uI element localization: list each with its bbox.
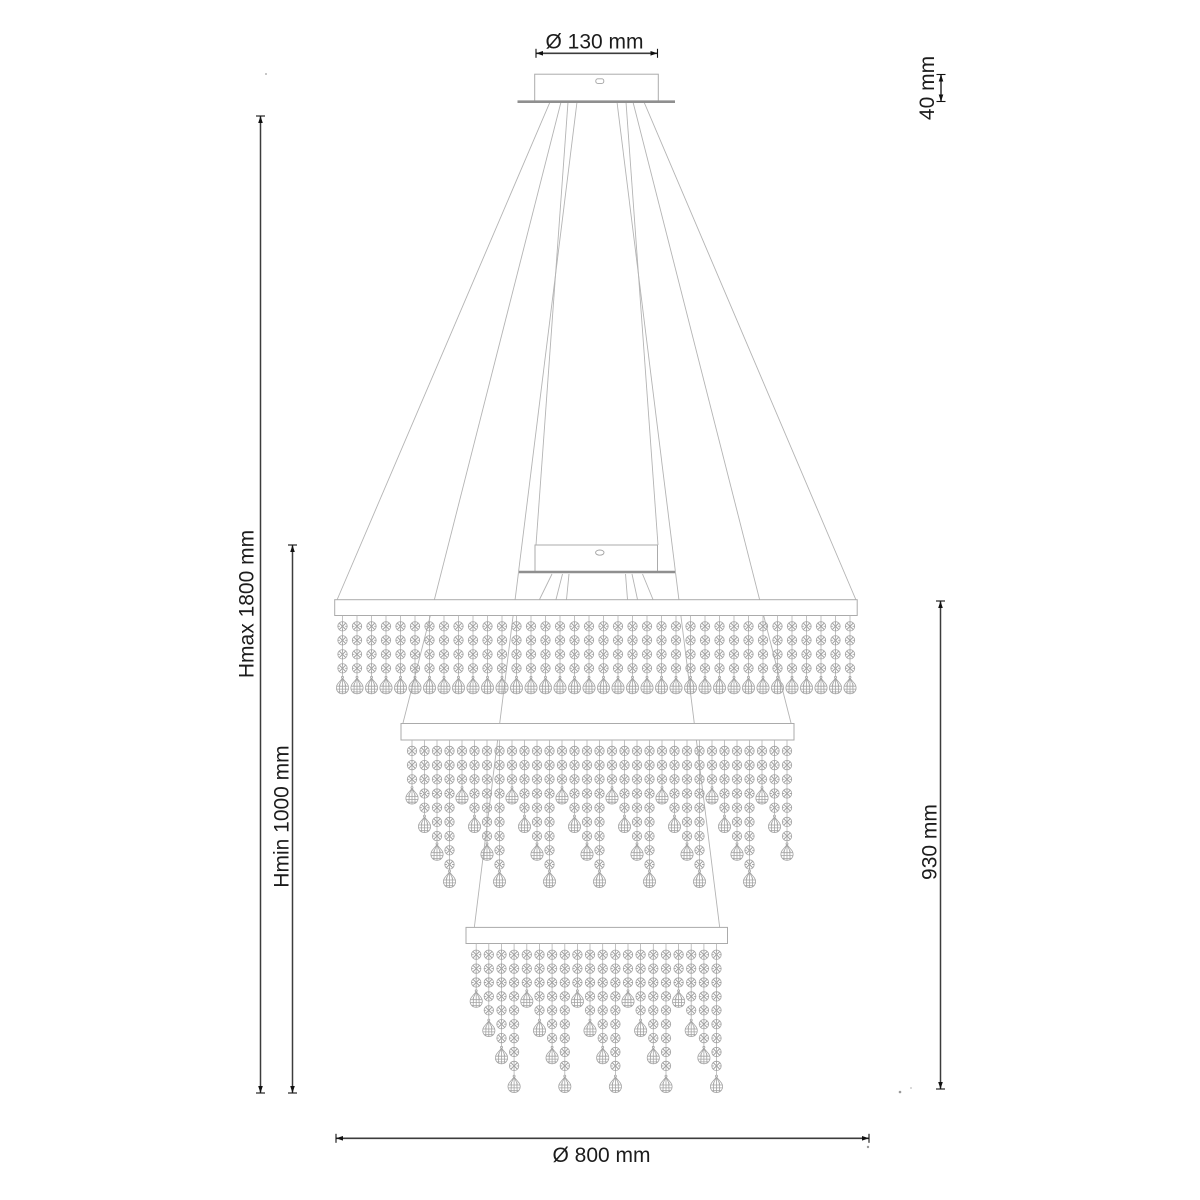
svg-text:Ø 130 mm: Ø 130 mm: [545, 30, 643, 53]
svg-text:Hmax 1800 mm: Hmax 1800 mm: [236, 530, 259, 678]
svg-text:930 mm: 930 mm: [919, 804, 942, 880]
svg-text:Hmin 1000 mm: Hmin 1000 mm: [271, 745, 294, 887]
svg-text:40 mm: 40 mm: [916, 56, 939, 120]
svg-text:Ø 800 mm: Ø 800 mm: [552, 1144, 650, 1167]
